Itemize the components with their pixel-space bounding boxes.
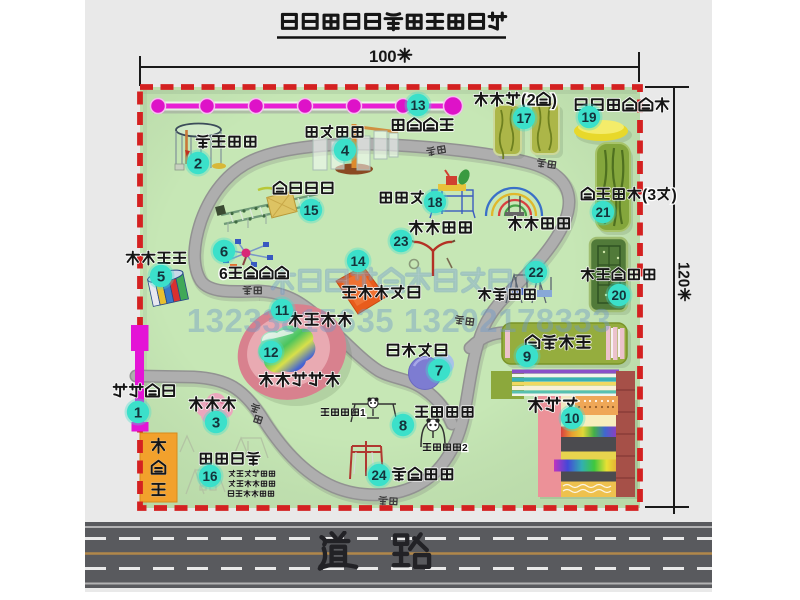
svg-text:11: 11 (275, 303, 290, 318)
svg-text:6: 6 (220, 243, 228, 260)
svg-text:24: 24 (371, 468, 387, 483)
svg-text:2: 2 (462, 443, 468, 454)
svg-text:2: 2 (194, 155, 202, 172)
svg-text:20: 20 (611, 288, 626, 303)
svg-text:9: 9 (523, 348, 531, 365)
svg-text:3: 3 (647, 187, 656, 204)
svg-text:15: 15 (303, 203, 319, 218)
svg-text:23: 23 (393, 234, 409, 249)
svg-text:13233815635 13202178333: 13233815635 13202178333 (187, 302, 611, 339)
svg-text:1: 1 (134, 404, 142, 421)
svg-text:13: 13 (410, 98, 426, 113)
svg-text:1: 1 (369, 47, 378, 66)
svg-text:21: 21 (595, 205, 611, 220)
svg-text:): ) (552, 91, 557, 109)
svg-text:0: 0 (378, 47, 387, 66)
svg-text:6: 6 (219, 266, 228, 283)
svg-text:4: 4 (341, 142, 350, 159)
svg-text:5: 5 (157, 268, 165, 285)
svg-text:14: 14 (350, 254, 366, 269)
svg-text:1: 1 (360, 408, 366, 419)
svg-text:10: 10 (564, 411, 579, 426)
svg-text:22: 22 (528, 265, 543, 280)
svg-text:3: 3 (212, 414, 220, 431)
svg-text:17: 17 (516, 111, 531, 126)
svg-text:16: 16 (202, 469, 218, 484)
svg-text:19: 19 (581, 110, 596, 125)
svg-text:8: 8 (399, 417, 407, 434)
svg-text:7: 7 (435, 362, 443, 379)
svg-text:18: 18 (427, 195, 443, 210)
svg-text:2: 2 (675, 270, 692, 279)
svg-text:0: 0 (387, 47, 396, 66)
svg-text:): ) (672, 187, 677, 204)
svg-text:0: 0 (675, 279, 692, 288)
svg-text:12: 12 (263, 345, 278, 360)
